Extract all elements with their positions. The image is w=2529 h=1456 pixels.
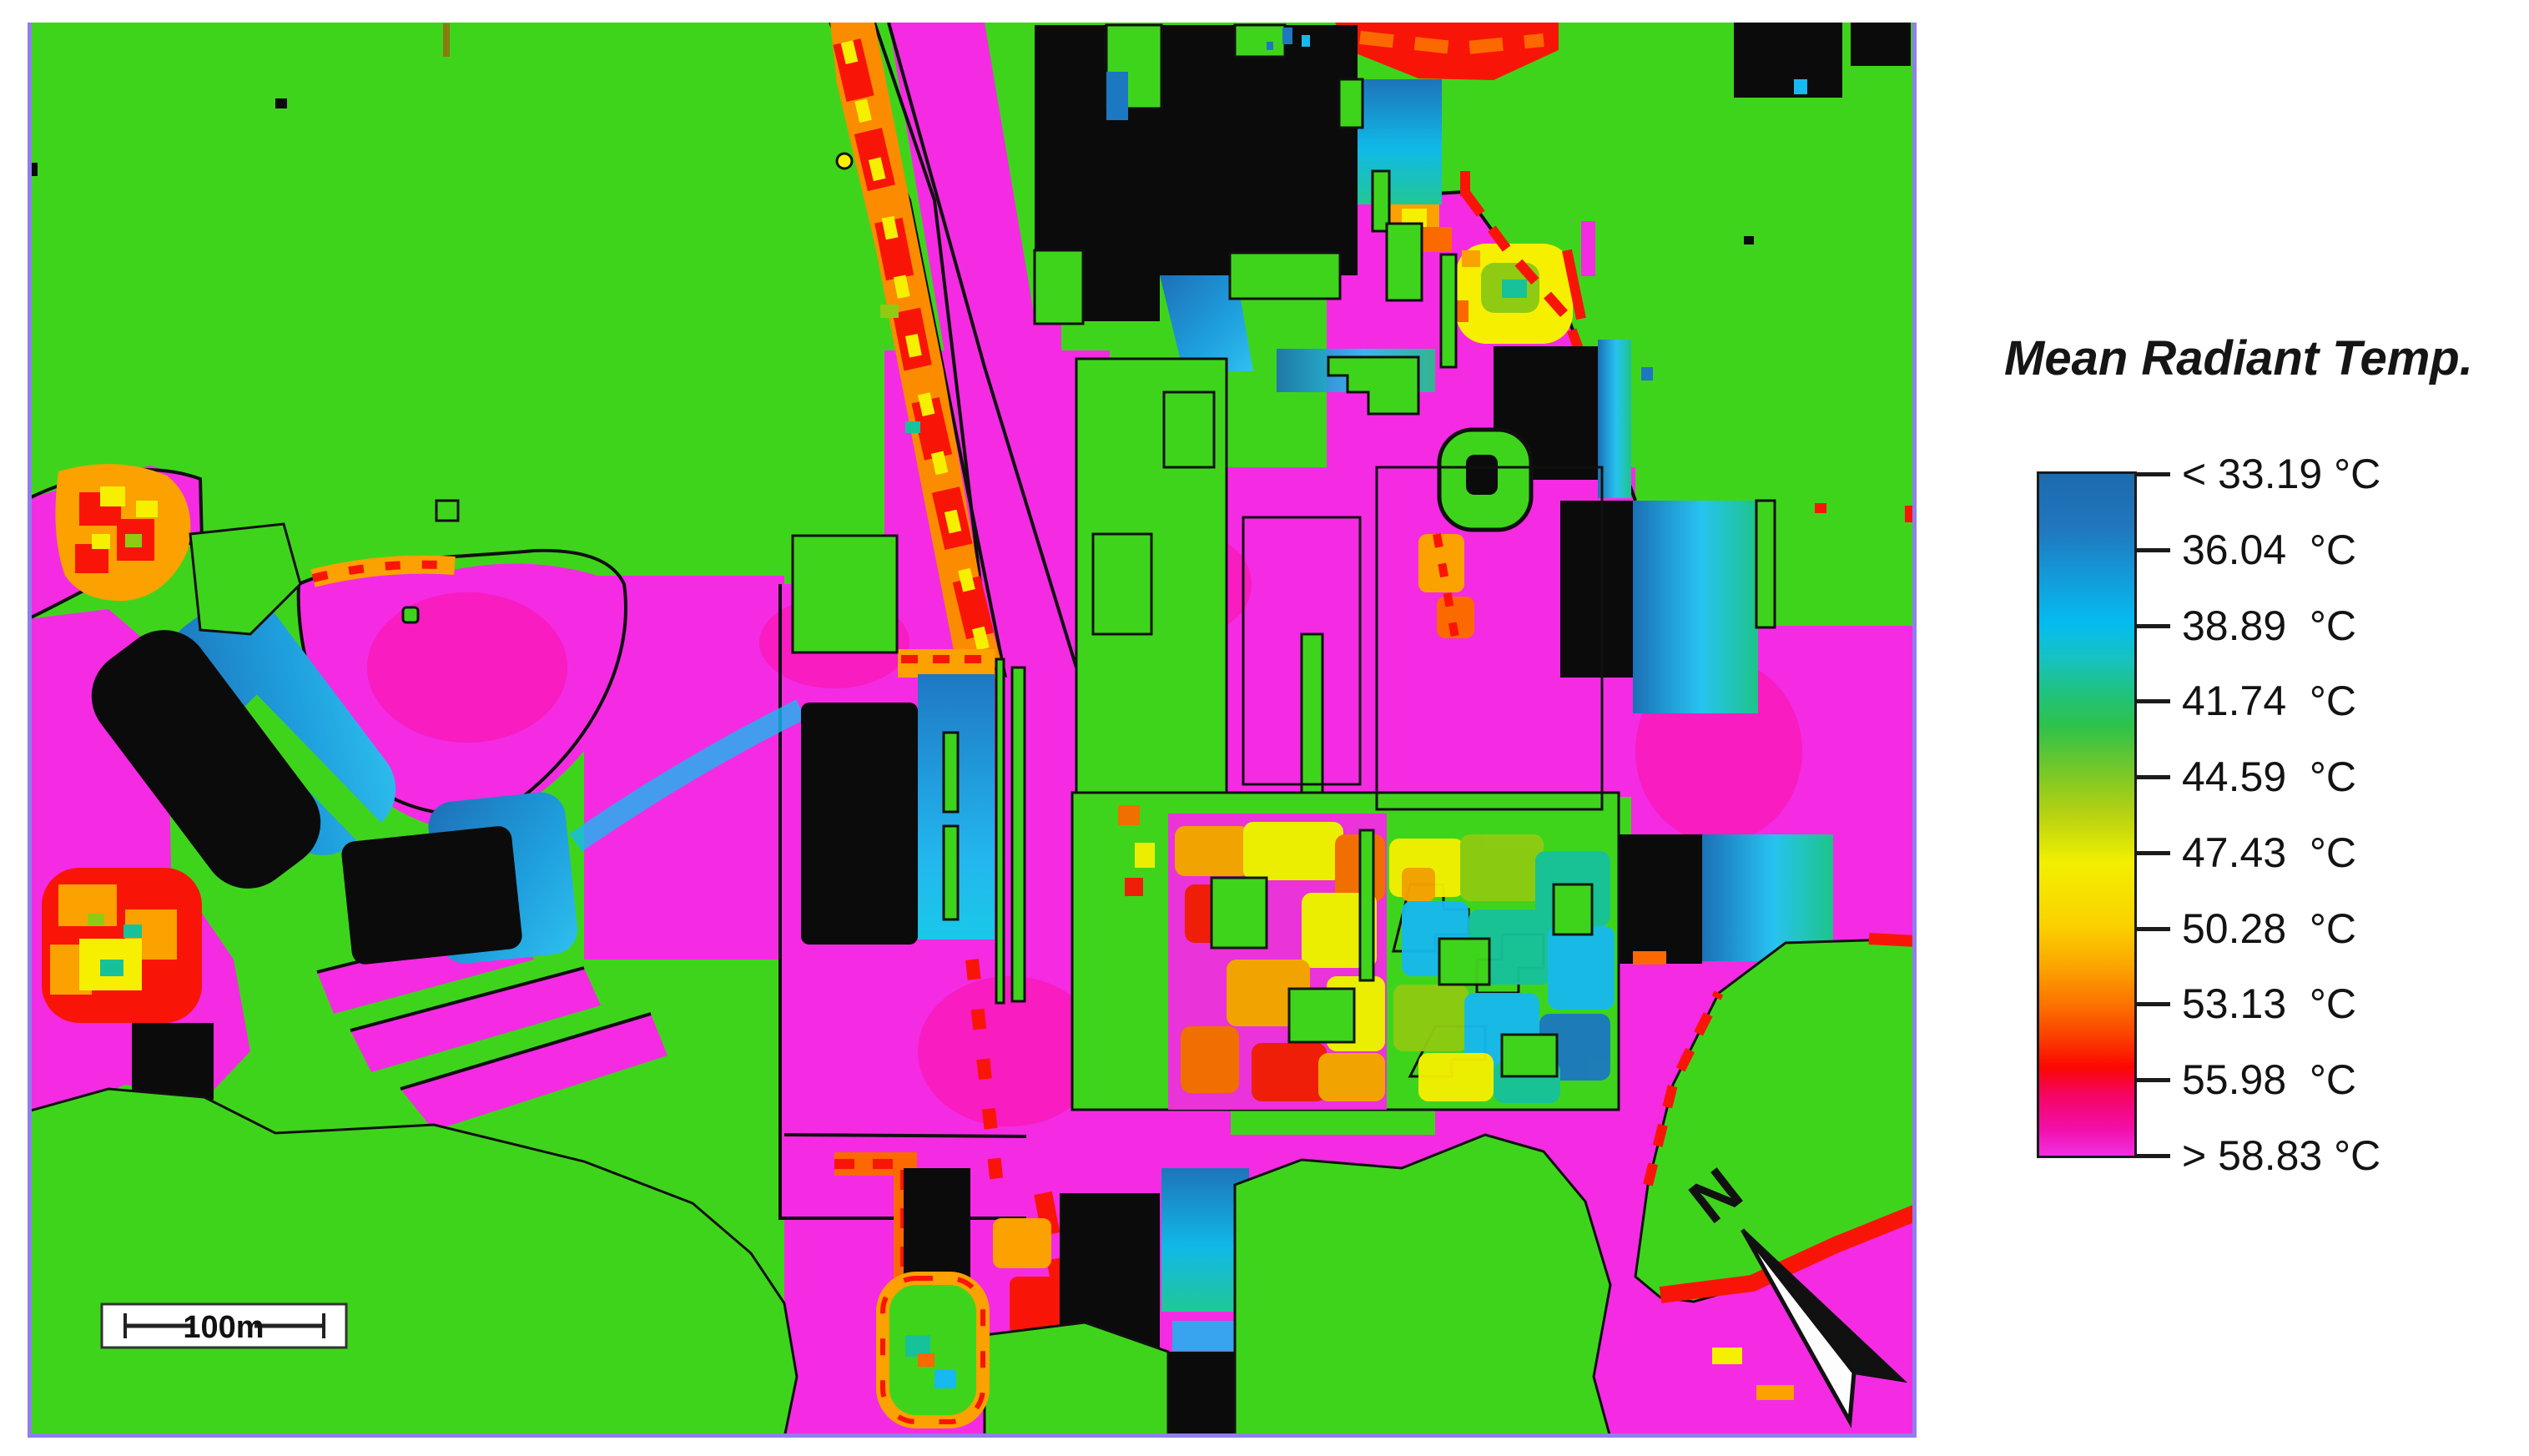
legend-tick: 41.74 °C xyxy=(2137,679,2356,723)
legend-tick: 55.98 °C xyxy=(2137,1058,2356,1101)
legend-tick-label: < 33.19 °C xyxy=(2182,450,2380,498)
legend-tick: < 33.19 °C xyxy=(2137,452,2380,496)
legend-ticks: < 33.19 °C 36.04 °C 38.89 °C 41.74 °C 44… xyxy=(2137,0,2521,1456)
legend-tick: 50.28 °C xyxy=(2137,907,2356,950)
park-canopy-mottle xyxy=(1118,805,1615,1110)
legend-tick-label: 53.13 °C xyxy=(2182,980,2356,1028)
legend-tick-label: 55.98 °C xyxy=(2182,1055,2356,1104)
legend-tick-label: > 58.83 °C xyxy=(2182,1131,2380,1180)
courtyard-inner-structure xyxy=(1466,455,1498,495)
legend-tick: 36.04 °C xyxy=(2137,528,2356,572)
legend-colorbar xyxy=(2037,471,2137,1158)
legend-tick-label: 47.43 °C xyxy=(2182,829,2356,877)
scale-bar: 100m xyxy=(102,1304,346,1348)
legend-tick-label: 41.74 °C xyxy=(2182,677,2356,725)
legend-tick-label: 36.04 °C xyxy=(2182,526,2356,574)
legend-tick: > 58.83 °C xyxy=(2137,1134,2380,1177)
legend-tick: 44.59 °C xyxy=(2137,755,2356,799)
legend-tick: 38.89 °C xyxy=(2137,604,2356,647)
map-canvas: 100m N xyxy=(28,23,1917,1438)
legend-tick-label: 38.89 °C xyxy=(2182,602,2356,650)
legend-tick: 53.13 °C xyxy=(2137,982,2356,1025)
page: 100m N Mean Radiant Temp. < 33.19 °C 36.… xyxy=(0,0,2529,1456)
legend-tick-label: 44.59 °C xyxy=(2182,753,2356,801)
legend-tick: 47.43 °C xyxy=(2137,831,2356,874)
map-panel: 100m N xyxy=(28,23,1917,1438)
scale-bar-label: 100m xyxy=(183,1310,264,1345)
legend-tick-label: 50.28 °C xyxy=(2182,904,2356,953)
